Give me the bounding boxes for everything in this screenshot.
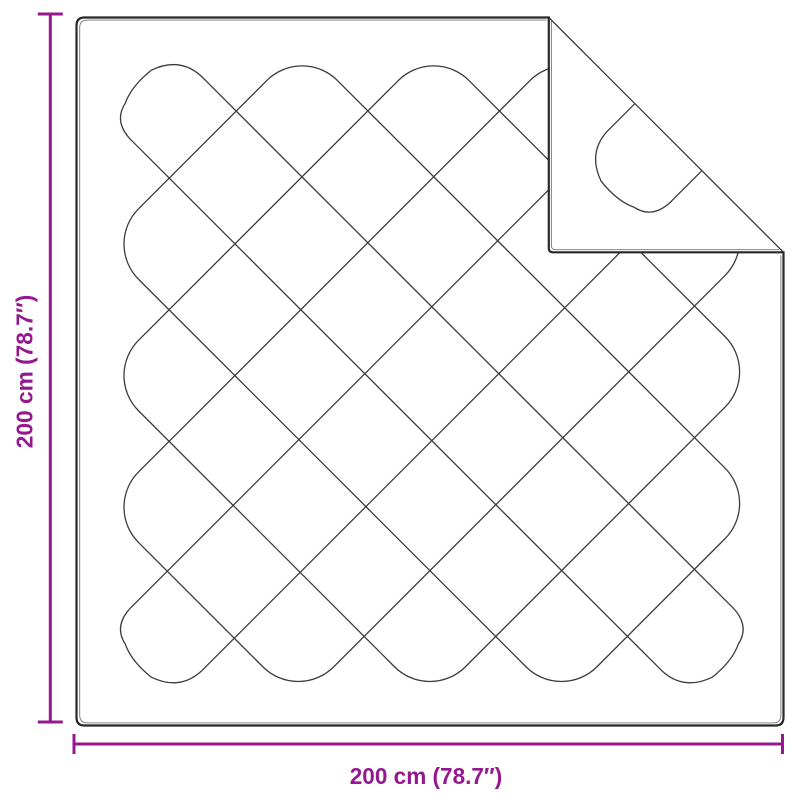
svg-text:200 cm (78.7″): 200 cm (78.7″) <box>12 295 38 449</box>
svg-text:200 cm (78.7″): 200 cm (78.7″) <box>350 763 503 789</box>
